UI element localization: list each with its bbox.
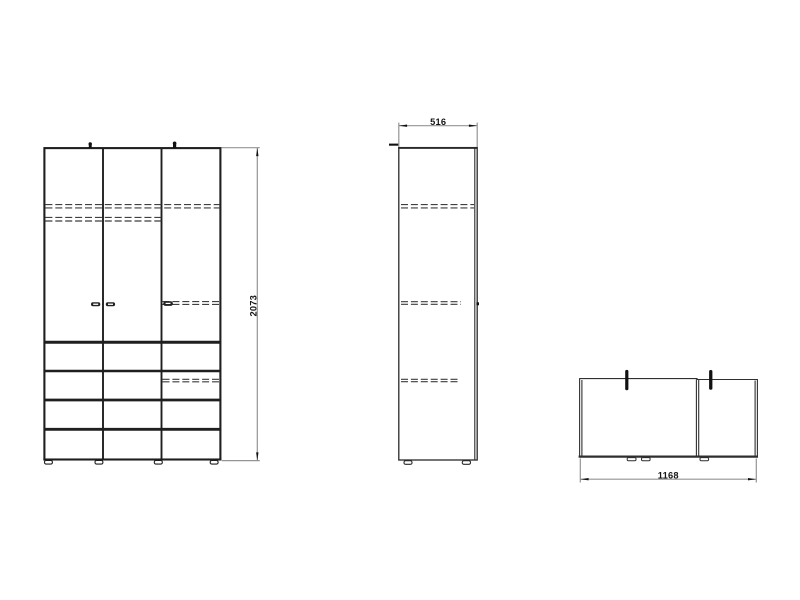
svg-text:2073: 2073 <box>249 295 259 316</box>
svg-text:1168: 1168 <box>658 471 679 481</box>
svg-text:516: 516 <box>430 117 446 127</box>
